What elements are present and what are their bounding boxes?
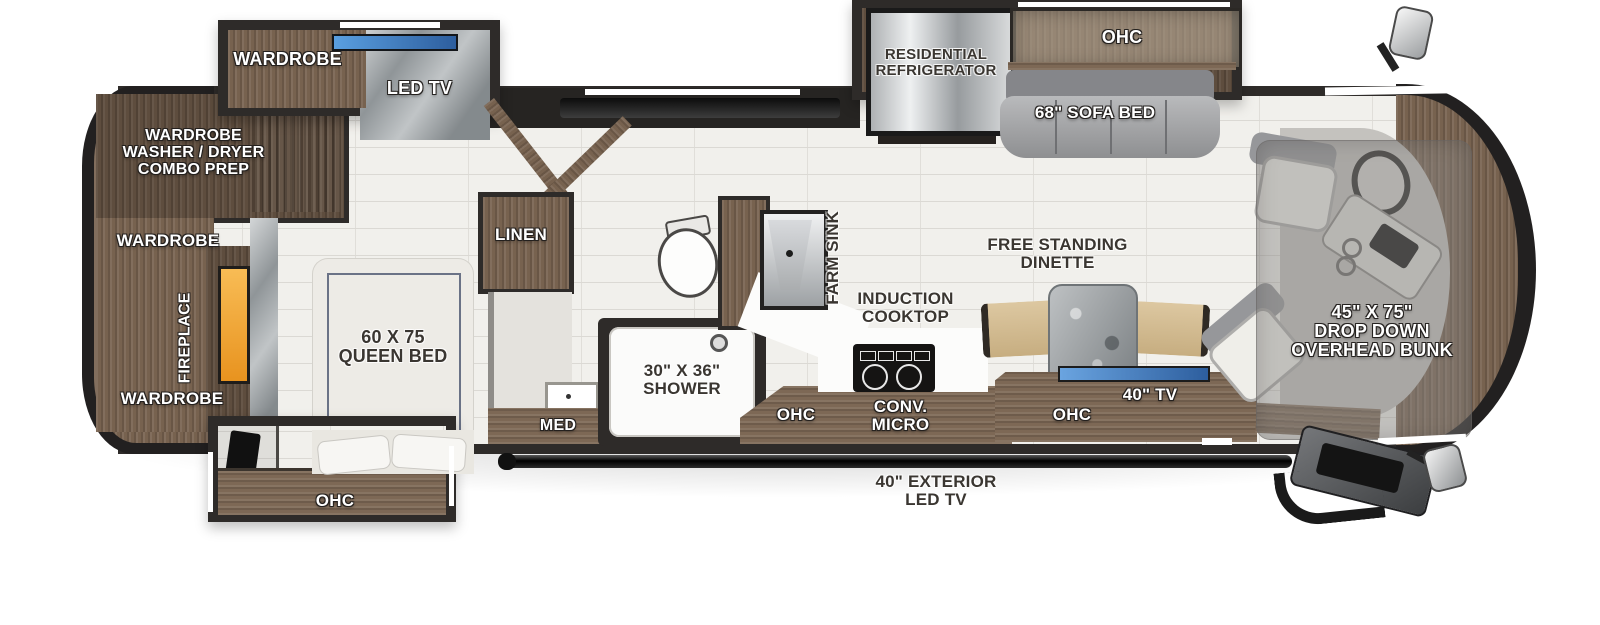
slide-window-right: [449, 446, 454, 506]
label-exterior-tv: 40" EXTERIOR LED TV: [855, 473, 1017, 509]
label-shower: 30" X 36" SHOWER: [612, 362, 752, 398]
steps-grab-handle: [1273, 463, 1385, 529]
fireplace-insert: [218, 266, 250, 384]
label-induction: INDUCTION COOKTOP: [838, 290, 973, 326]
farm-sink-drain: [786, 250, 793, 257]
label-washer-dryer: WARDROBE WASHER / DRYER COMBO PREP: [96, 128, 291, 179]
label-tv-40: 40" TV: [1110, 386, 1190, 404]
label-queen-bed: 60 X 75 QUEEN BED: [318, 328, 468, 366]
label-ohc-bedroom: OHC: [305, 492, 365, 510]
cooktop-control-1: [860, 351, 876, 361]
slide-window-left: [208, 452, 213, 512]
label-ohc-sofa: OHC: [1090, 28, 1154, 47]
cooktop-control-3: [896, 351, 912, 361]
label-conv-micro: CONV. MICRO: [848, 398, 953, 434]
side-mirror-top-icon: [1387, 5, 1435, 62]
label-overhead-bunk: 45" X 75" DROP DOWN OVERHEAD BUNK: [1278, 303, 1466, 360]
slide-roof-highlight: [340, 22, 440, 28]
vanity-sink-drain: [566, 394, 571, 399]
cooktop-control-4: [914, 351, 930, 361]
label-med: MED: [518, 418, 598, 435]
bedroom-led-tv-screen: [332, 34, 458, 51]
hall-window: [560, 98, 840, 118]
label-wardrobe-rear: WARDROBE: [112, 390, 232, 408]
cooktop-burner-left: [862, 364, 888, 390]
hall-window-highlight: [585, 89, 800, 95]
label-ohc-tv: OHC: [1040, 406, 1104, 424]
label-fireplace: FIREPLACE: [176, 293, 194, 384]
label-wardrobe-mid: WARDROBE: [108, 232, 228, 250]
label-sofa-bed: 68" SOFA BED: [1015, 104, 1175, 122]
bed-pillow-right: [391, 433, 467, 472]
label-linen: LINEN: [480, 226, 562, 244]
label-refrigerator: RESIDENTIAL REFRIGERATOR: [868, 47, 1004, 79]
living-tv-screen: [1058, 366, 1210, 382]
cooktop-control-2: [878, 351, 894, 361]
sofa-ohc-lip: [1008, 62, 1236, 70]
awning-rail-endcap: [498, 453, 516, 470]
awning-rail: [502, 455, 1292, 468]
floorplan-canvas: WARDROBE LED TV WARDROBE WASHER / DRYER …: [0, 0, 1600, 625]
door-sill-highlight-1: [1202, 438, 1232, 445]
dinette-chair-left: [981, 300, 1059, 358]
label-dinette: FREE STANDING DINETTE: [985, 236, 1130, 272]
overhead-bunk-overlay: [1256, 140, 1472, 440]
cooktop-burner-right: [896, 364, 922, 390]
label-wardrobe-slide: WARDROBE: [225, 50, 350, 69]
sofa-slide-roof-highlight: [1018, 2, 1230, 7]
label-led-tv: LED TV: [372, 79, 467, 98]
shower-head: [710, 334, 728, 352]
tv-credenza: [995, 372, 1257, 442]
front-wall-window: [1325, 84, 1500, 95]
dinette-chair-right: [1131, 301, 1211, 357]
label-ohc-bath: OHC: [766, 406, 826, 424]
